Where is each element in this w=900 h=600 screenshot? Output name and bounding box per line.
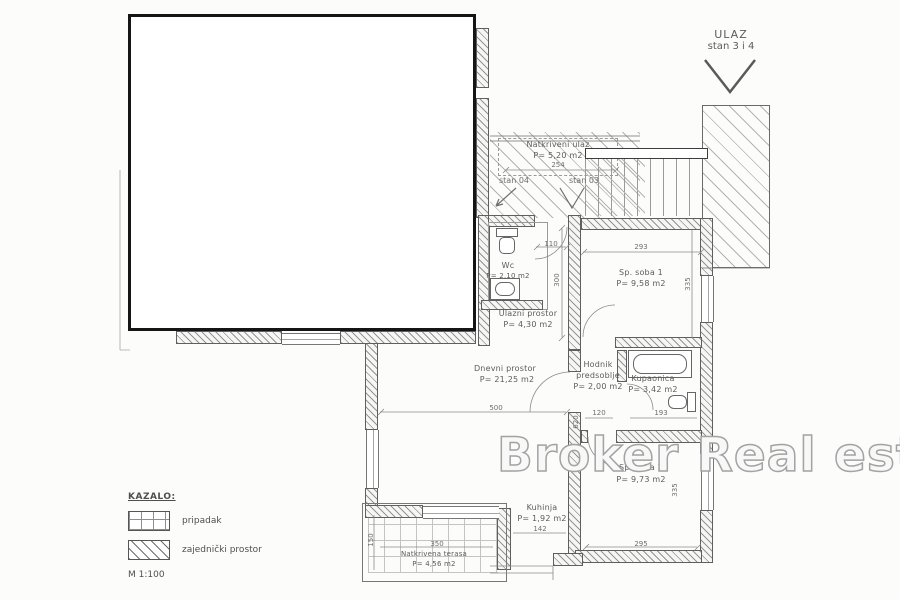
wall [568,350,581,372]
pripadak-pattern-icon [128,511,170,531]
room-label-natkriveni-ulaz: Natkriveni ulaz [526,140,589,150]
wall [553,553,583,566]
wall [575,550,702,563]
bathtub-inner-icon [633,354,687,374]
legend-title: KAZALO: [128,492,262,502]
room-area-hodnik: P= 2,00 m2 [573,382,622,392]
dim-natkrivena-terasa-width: 350 [430,540,443,548]
legend-item-pripadak: pripadak [128,511,262,531]
room-label-kuhinja: Kuhinja [527,503,558,513]
scale-label: M 1:100 [128,570,262,580]
room-area-kuhinja: P= 1,92 m2 [517,514,566,524]
dim-hodnik-width: 120 [592,409,605,417]
room-label-kupaonica: Kupaonica [631,374,674,384]
label-stan-04: stan 04 [499,177,529,185]
window [701,276,714,322]
dim-entry-door: 110 [544,240,557,248]
door-arc [530,372,570,412]
room-label-sp-soba-1: Sp. soba 1 [619,268,663,278]
legend-item-zajednicki-prostor: zajednički prostor [128,540,262,560]
toilet-bowl-icon [499,237,515,254]
legend: KAZALO: pripadak zajednički prostor M 1:… [128,492,262,580]
hatch-pattern-icon [128,540,170,560]
room-label-natkrivena-terasa: Natkrivena terasa [401,549,467,559]
legend-item-label: zajednički prostor [182,545,262,555]
wall [581,218,702,230]
wall [568,215,581,350]
room-area-kupaonica: P= 3,42 m2 [628,385,677,395]
entrance-arrow-icon [705,60,755,92]
room-area-sp-soba-1: P= 9,58 m2 [616,279,665,289]
dim-kuhinja-width: 142 [533,525,546,533]
door-arc [583,305,615,337]
label-stan-03: stan 03 [569,177,599,185]
floor-plan: ULAZ stan 3 i 4 Natkriveni ulaz P= 5,20 … [0,0,900,600]
room-area-dnevni-prostor: P= 21,25 m2 [480,375,535,385]
watermark: Broker Real estate [497,428,900,483]
room-area-wc: P= 2,10 m2 [486,271,529,281]
wall [340,331,476,344]
dim-dnevni-prostor-height: 620 [572,415,580,428]
wall [176,331,282,344]
legend-item-label: pripadak [182,516,222,526]
wall [476,98,489,218]
toilet-bowl-icon [668,395,687,409]
room-area-natkriveni-ulaz: P= 5,20 m2 [533,151,582,161]
dim-natkriveni-ulaz-width: 254 [551,161,564,169]
dim-kupaonica-width: 193 [654,409,667,417]
wall [615,337,702,348]
toilet-tank-icon [687,392,696,412]
dim-natkrivena-terasa-height: 150 [367,533,375,546]
terrace-door [423,506,499,519]
room-area-natkrivena-terasa: P= 4,56 m2 [412,559,455,569]
masked-neighbour-unit [128,14,476,331]
room-label-ulazni-prostor: Ulazni prostor [499,309,557,319]
dim-sp-soba-2-width: 295 [634,540,647,548]
dim-sp-soba-1-width: 293 [634,243,647,251]
room-label-wc: Wc [502,261,515,271]
room-label-hodnik-1: Hodnik [583,360,612,370]
entrance-sign-title: ULAZ [708,28,755,41]
window [282,333,340,345]
room-area-ulazni-prostor: P= 4,30 m2 [503,320,552,330]
window [366,430,379,488]
sink-basin-icon [495,282,515,296]
dim-line [378,409,570,415]
room-label-hodnik-2: predsoblje [576,371,620,381]
dim-entry-side: 300 [553,273,561,286]
entrance-sign: ULAZ stan 3 i 4 [708,28,755,52]
dim-sp-soba-1-height: 335 [684,277,692,290]
stair-landing [585,148,708,159]
toilet-tank-icon [496,228,518,237]
dim-sp-soba-2-height: 335 [671,483,679,496]
dim-dnevni-prostor-width: 500 [489,404,502,412]
entrance-sign-subtitle: stan 3 i 4 [708,41,755,52]
wall [365,343,378,430]
wall [700,218,713,276]
room-label-dnevni-prostor: Dnevni prostor [474,364,536,374]
wall [476,28,489,88]
